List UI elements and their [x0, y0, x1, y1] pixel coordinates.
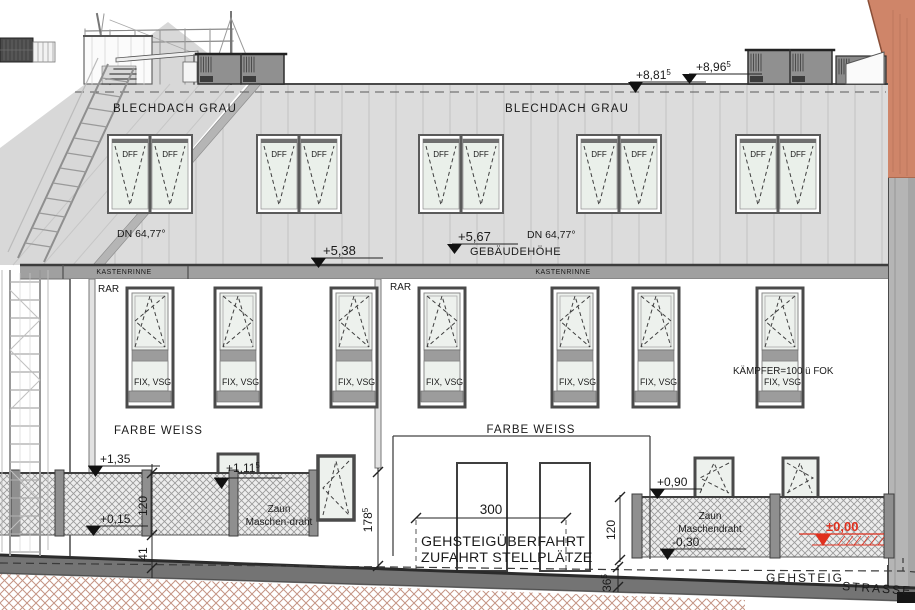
dff-pair: DFF DFF — [736, 135, 820, 213]
hvac-unit-right — [746, 50, 886, 84]
downpipe-left — [89, 279, 95, 473]
svg-text:+8,965: +8,965 — [696, 60, 731, 74]
hvac-unit-left — [183, 54, 286, 84]
dff-label: DFF — [122, 150, 138, 159]
dff-label: DFF — [591, 150, 607, 159]
dim-fence-right-height: 120 — [604, 520, 618, 540]
window-small-right-b — [783, 458, 818, 500]
dim-plinth-left: 41 — [136, 547, 150, 561]
dff-label: DFF — [311, 150, 327, 159]
fence-left-label-1: Zaun — [268, 504, 291, 515]
svg-text:+5,67: +5,67 — [458, 229, 491, 244]
building-height-label: GEBÄUDEHÖHE — [470, 246, 561, 258]
fence-post — [55, 470, 64, 536]
window-tilt-fix: FIX, VSG — [419, 288, 465, 407]
svg-text:+8,815: +8,815 — [636, 68, 671, 82]
facade-color-note-left: FARBE WEISS — [114, 425, 203, 437]
svg-text:-0,30: -0,30 — [672, 535, 700, 549]
svg-text:+0,90: +0,90 — [657, 475, 688, 489]
window-tilt-fix: FIX, VSG — [552, 288, 598, 407]
fence-right-label-1: Zaun — [699, 511, 722, 522]
gutter-label-right: KASTENRINNE — [535, 269, 590, 276]
window-tilt-fix: FIX, VSG — [127, 288, 173, 407]
window-tilt-fix: FIX, VSG — [633, 288, 679, 407]
driveway-note-1: GEHSTEIGÜBERFAHRT — [421, 532, 585, 550]
dff-pair: DFF DFF — [419, 135, 503, 213]
fix-vsg-label: FIX, VSG — [559, 377, 596, 387]
fix-vsg-label: FIX, VSG — [222, 377, 259, 387]
window-tilt-fix: FIX, VSG — [757, 288, 803, 407]
fence-left-label-2: Maschen-draht — [246, 517, 313, 528]
svg-text:+0,15: +0,15 — [100, 512, 131, 526]
svg-text:+5,38: +5,38 — [323, 243, 356, 258]
svg-text:±0,00: ±0,00 — [826, 519, 858, 534]
fence-post — [632, 494, 642, 558]
fix-vsg-label: FIX, VSG — [640, 377, 677, 387]
gutter-label-left: KASTENRINNE — [96, 269, 151, 276]
fence-post — [770, 494, 780, 558]
kaempfer-note: KÄMPFER=100 ü FOK — [733, 366, 834, 377]
roof-slope-label-right: DN 64,77° — [527, 229, 576, 241]
dff-pair: DFF DFF — [577, 135, 661, 213]
dff-label: DFF — [433, 150, 449, 159]
window-small-standalone — [318, 456, 354, 520]
fix-vsg-label: FIX, VSG — [338, 377, 375, 387]
window-tilt-fix: FIX, VSG — [331, 288, 377, 407]
fence-post — [229, 470, 238, 536]
dim-fence-left-height: 120 — [136, 496, 150, 516]
driveway-width-dim: 300 — [480, 502, 503, 517]
svg-text:+1,115: +1,115 — [226, 461, 260, 475]
fix-vsg-label: FIX, VSG — [764, 377, 801, 387]
dff-label: DFF — [271, 150, 287, 159]
dff-label: DFF — [631, 150, 647, 159]
facade-color-note-center: FARBE WEISS — [487, 424, 576, 436]
downpipe-label-left: RAR — [98, 284, 119, 295]
driveway-note-2: ZUFAHRT STELLPLÄTZE — [421, 549, 593, 566]
sidewalk-label: GEHSTEIG — [766, 571, 844, 585]
dff-pair: DFF DFF — [257, 135, 341, 213]
fence-post — [884, 494, 894, 558]
gutter: KASTENRINNE KASTENRINNE — [20, 265, 888, 279]
dff-label: DFF — [750, 150, 766, 159]
dff-label: DFF — [790, 150, 806, 159]
fix-vsg-label: FIX, VSG — [426, 377, 463, 387]
roof-slope-label-left: DN 64,77° — [117, 228, 166, 240]
fence-right-label-2: Maschendraht — [678, 524, 742, 535]
dff-pair: DFF DFF — [108, 135, 192, 213]
fix-vsg-label: FIX, VSG — [134, 377, 171, 387]
dff-label: DFF — [162, 150, 178, 159]
roof-material-label-left: BLECHDACH GRAU — [113, 103, 237, 115]
dff-label: DFF — [473, 150, 489, 159]
downpipe-label-right: RAR — [390, 282, 411, 293]
window-small-right-a — [695, 458, 733, 500]
rooftop-grille — [33, 42, 55, 62]
rooftop-structures — [0, 12, 886, 84]
roof-material-label-right: BLECHDACH GRAU — [505, 103, 629, 115]
svg-text:+1,35: +1,35 — [100, 452, 131, 466]
drawing-canvas: KASTENRINNE KASTENRINNE RAR RAR DFF DFF — [0, 0, 915, 610]
elevation-drawing: KASTENRINNE KASTENRINNE RAR RAR DFF DFF — [0, 0, 915, 610]
window-tilt-fix: FIX, VSG — [215, 288, 261, 407]
